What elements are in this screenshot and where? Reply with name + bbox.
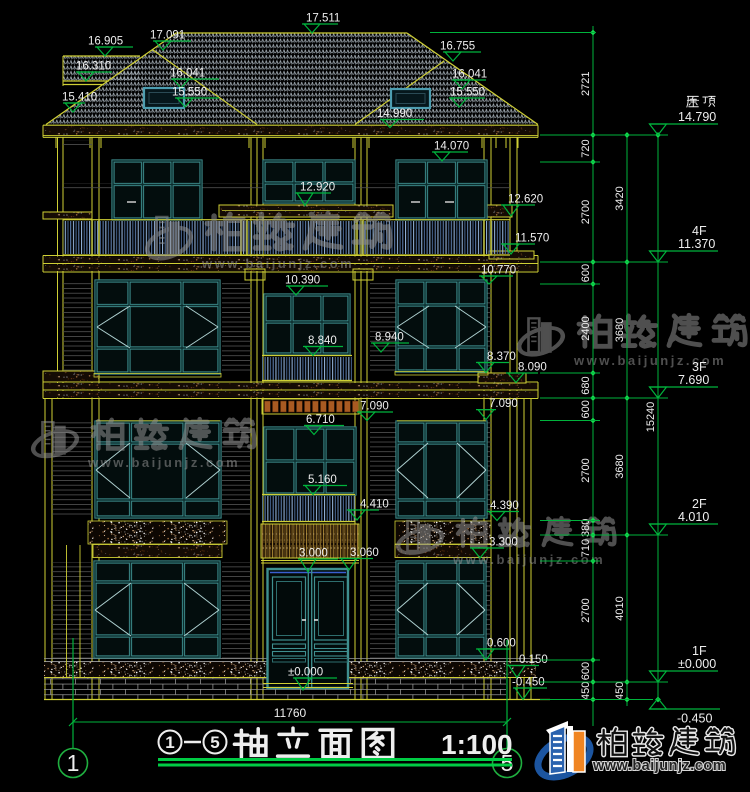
svg-text:-0.450: -0.450	[512, 677, 545, 689]
svg-text:4.010: 4.010	[678, 510, 709, 524]
svg-text:2F: 2F	[692, 497, 707, 511]
svg-text:15.550: 15.550	[172, 87, 207, 99]
svg-text:7.690: 7.690	[678, 373, 709, 387]
svg-text:1F: 1F	[692, 644, 707, 658]
svg-text:3680: 3680	[614, 454, 626, 478]
svg-text:450: 450	[614, 682, 626, 700]
svg-text:5: 5	[210, 733, 219, 752]
svg-text:3F: 3F	[692, 360, 707, 374]
svg-text:2700: 2700	[580, 458, 592, 482]
svg-text:3420: 3420	[614, 186, 626, 210]
svg-text:16.905: 16.905	[88, 36, 123, 48]
svg-text:11.370: 11.370	[678, 237, 715, 251]
svg-text:3680: 3680	[614, 318, 626, 342]
svg-text:710: 710	[580, 539, 592, 557]
svg-text:7.090: 7.090	[360, 401, 389, 413]
svg-text:11.570: 11.570	[515, 233, 549, 245]
svg-text:6.710: 6.710	[306, 414, 335, 426]
svg-text:15.410: 15.410	[62, 92, 97, 104]
svg-text:17.091: 17.091	[150, 30, 185, 42]
svg-text:8.940: 8.940	[375, 332, 404, 344]
svg-text:2400: 2400	[580, 316, 592, 340]
svg-text:16.755: 16.755	[440, 41, 475, 53]
svg-text:720: 720	[580, 139, 592, 157]
svg-text:0.600: 0.600	[487, 638, 516, 650]
svg-text:10.770: 10.770	[481, 265, 516, 277]
svg-text:14.790: 14.790	[678, 110, 716, 124]
svg-text:17.511: 17.511	[306, 13, 340, 25]
svg-text:-0.450: -0.450	[677, 712, 712, 726]
svg-text:8.840: 8.840	[308, 335, 337, 347]
svg-text:16.041: 16.041	[452, 69, 487, 81]
svg-text:12.620: 12.620	[508, 194, 543, 206]
svg-text:www.baijunjz.com: www.baijunjz.com	[592, 758, 726, 774]
svg-text:8.370: 8.370	[487, 351, 516, 363]
svg-text:10.390: 10.390	[285, 275, 320, 287]
svg-text:1: 1	[67, 750, 80, 776]
svg-text:2700: 2700	[580, 200, 592, 224]
svg-text:4F: 4F	[692, 224, 707, 238]
svg-text:16.041: 16.041	[170, 68, 205, 80]
svg-text:4.390: 4.390	[490, 500, 519, 512]
svg-text:600: 600	[580, 264, 592, 282]
svg-text:14.070: 14.070	[434, 141, 469, 153]
svg-text:2700: 2700	[580, 598, 592, 622]
svg-text:±0.000: ±0.000	[288, 667, 323, 679]
svg-text:11760: 11760	[274, 706, 307, 720]
svg-text:680: 680	[580, 376, 592, 394]
svg-text:15.550: 15.550	[450, 87, 485, 99]
svg-text:5.160: 5.160	[308, 474, 337, 486]
svg-text:7.090: 7.090	[489, 398, 518, 410]
svg-text:1: 1	[165, 733, 174, 752]
svg-text:3.060: 3.060	[350, 547, 379, 559]
svg-text:450: 450	[580, 682, 592, 700]
svg-text:www.baijunjz.com: www.baijunjz.com	[87, 455, 240, 470]
svg-text:12.920: 12.920	[300, 182, 335, 194]
svg-text:8.090: 8.090	[518, 362, 547, 374]
svg-text:14.990: 14.990	[377, 108, 412, 120]
svg-text:www.baijunjz.com: www.baijunjz.com	[201, 256, 354, 271]
svg-text:600: 600	[580, 662, 592, 680]
svg-text:4010: 4010	[614, 596, 626, 620]
svg-text:16.310: 16.310	[76, 61, 111, 73]
svg-text:380: 380	[580, 519, 592, 537]
svg-text:15240: 15240	[645, 402, 657, 433]
svg-text:600: 600	[580, 400, 592, 418]
svg-text:3.300: 3.300	[489, 537, 518, 549]
svg-text:2721: 2721	[580, 72, 592, 96]
svg-text:3.000: 3.000	[299, 548, 328, 560]
svg-text:1:100: 1:100	[441, 729, 513, 760]
svg-text:4.410: 4.410	[360, 499, 389, 511]
svg-text:±0.000: ±0.000	[678, 657, 716, 671]
